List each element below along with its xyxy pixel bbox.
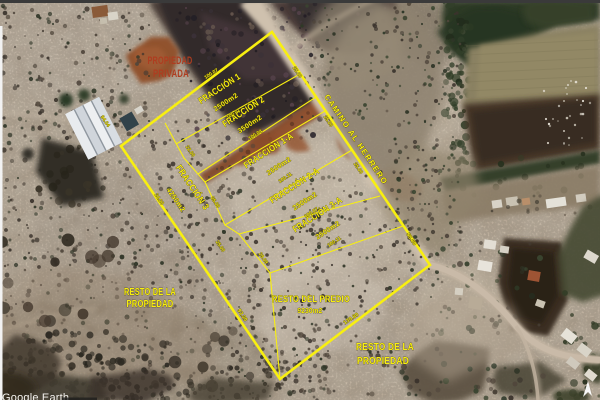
svg-text:PROPIEDAD: PROPIEDAD xyxy=(148,55,193,67)
svg-text:PROPIEDAD: PROPIEDAD xyxy=(357,355,409,367)
svg-text:RESTO DE LA: RESTO DE LA xyxy=(356,341,414,353)
svg-text:PROPIEDAD: PROPIEDAD xyxy=(127,299,174,310)
svg-text:Google Earth: Google Earth xyxy=(2,392,69,400)
svg-text:RESTO DEL PREDIO: RESTO DEL PREDIO xyxy=(272,294,350,304)
svg-text:9230m2: 9230m2 xyxy=(298,306,323,315)
svg-text:PRIVADA: PRIVADA xyxy=(153,68,189,80)
svg-text:RESTO DE LA: RESTO DE LA xyxy=(124,287,176,298)
